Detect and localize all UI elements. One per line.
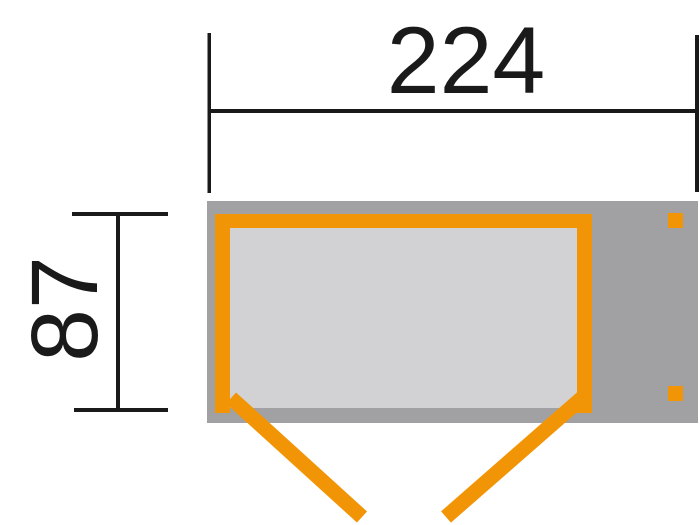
corner-post-top-right [668,213,683,228]
width-dimension-right-tick [695,35,699,192]
width-dimension-label: 224 [387,8,546,114]
corner-post-bottom-right [668,386,683,401]
wall-right [577,214,592,413]
interior-floor [230,228,577,408]
floor-plan-svg: 224 87 [0,0,700,525]
wall-left [215,214,230,413]
floor-plan-diagram: 224 87 [0,0,700,525]
depth-dimension: 87 [12,212,168,412]
wall-back [215,214,592,228]
width-dimension: 224 [208,8,700,193]
depth-dimension-bottom-tick [74,408,168,412]
depth-dimension-label: 87 [12,256,118,362]
